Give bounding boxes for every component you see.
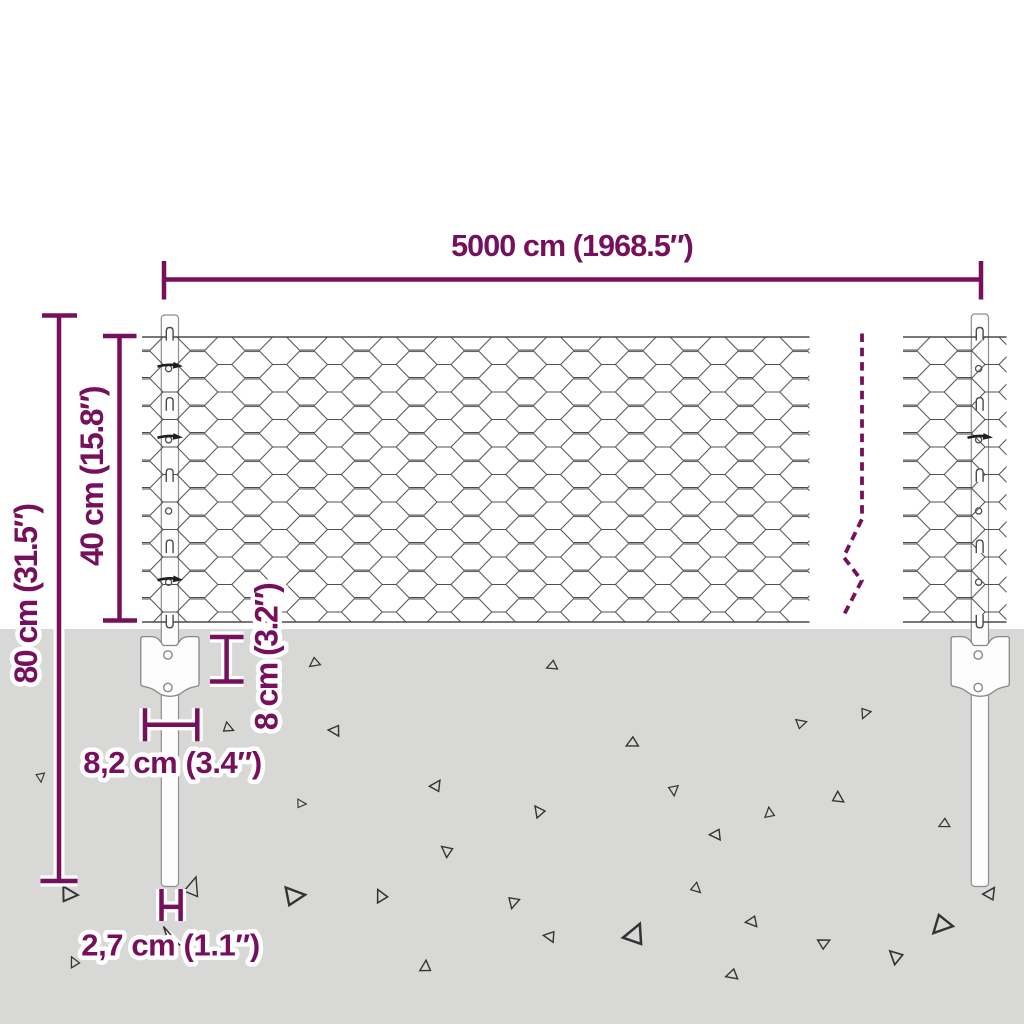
- svg-text:40 cm (15.8″): 40 cm (15.8″): [74, 386, 110, 566]
- svg-text:5000 cm (1968.5″): 5000 cm (1968.5″): [451, 229, 693, 263]
- svg-text:80 cm (31.5″): 80 cm (31.5″): [8, 504, 44, 684]
- svg-text:8,2 cm (3.4″): 8,2 cm (3.4″): [83, 745, 262, 780]
- svg-text:8 cm (3.2″): 8 cm (3.2″): [249, 583, 285, 730]
- svg-text:2,7 cm (1.1″): 2,7 cm (1.1″): [81, 928, 260, 963]
